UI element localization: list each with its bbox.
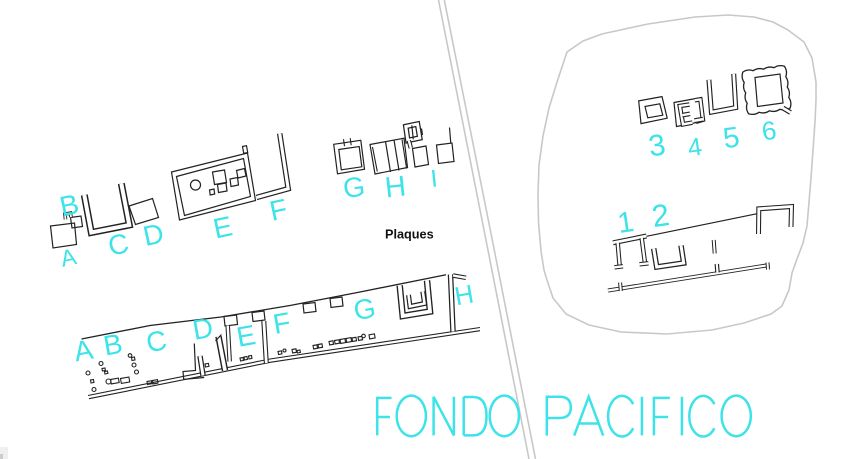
svg-text:Plaques: Plaques	[385, 228, 434, 242]
svg-text:G: G	[341, 170, 367, 204]
svg-text:H: H	[383, 170, 407, 204]
